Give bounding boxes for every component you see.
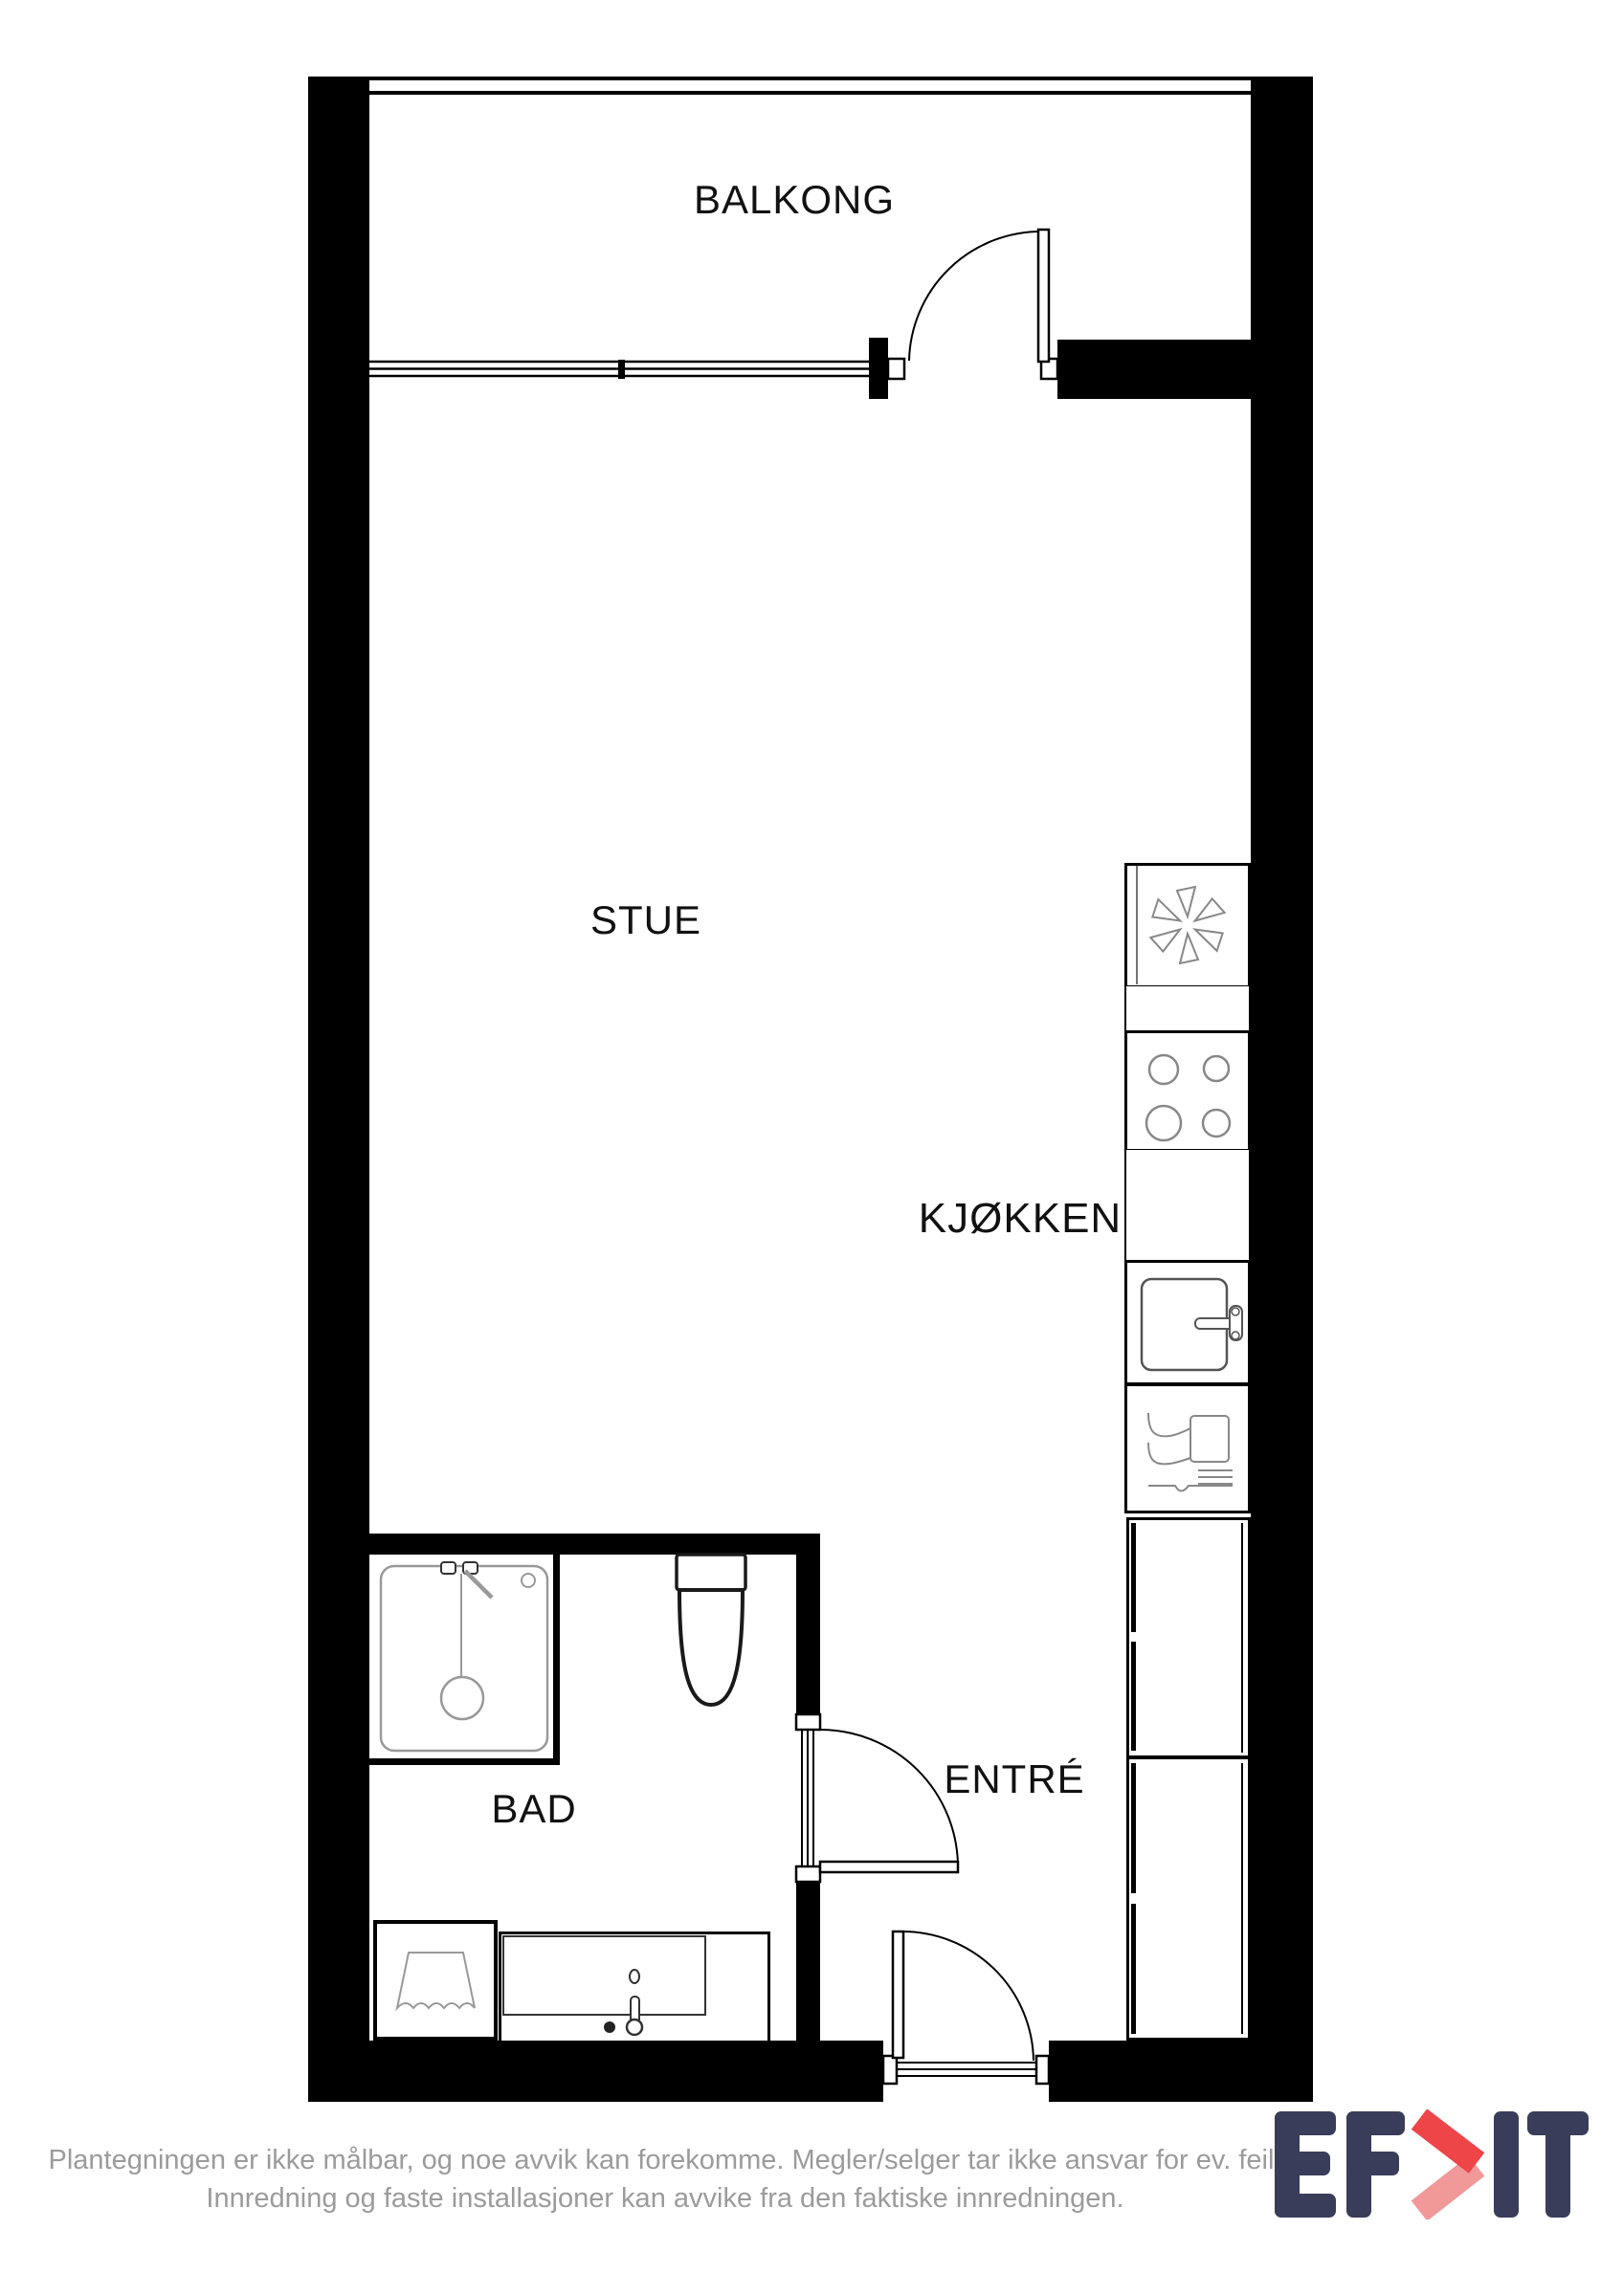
efkt-logo [1273, 2109, 1589, 2219]
fridge-snowflake-icon [1137, 866, 1226, 984]
cooktop-burners-icon [1146, 1055, 1230, 1140]
fixtures-layer [0, 0, 1623, 2296]
entrance-door-leaf [893, 1932, 903, 2058]
kitchen-sink-icon [1142, 1279, 1242, 1370]
room-label-bathroom: BAD [390, 1786, 678, 1832]
logo-letter-e [1275, 2111, 1336, 2218]
logo-letter-i [1494, 2111, 1519, 2218]
washbasin-icon [604, 1970, 642, 2035]
logo-chevron-icon [1419, 2119, 1477, 2211]
shower-icon [381, 1562, 547, 1751]
toilet-icon [677, 1555, 745, 1705]
dishwasher-icon [1148, 1413, 1233, 1491]
room-label-entrance: ENTRÉ [871, 1756, 1158, 1802]
floor-plan-page: BALKONG STUE KJØKKEN BAD ENTRÉ Plantegni… [0, 0, 1623, 2296]
logo-letter-t [1527, 2111, 1589, 2218]
disclaimer-text: Plantegningen er ikke målbar, og noe avv… [29, 2141, 1301, 2218]
balcony-door-leaf [1038, 230, 1049, 362]
disclaimer-line-2: Innredning og faste installasjoner kan a… [29, 2179, 1301, 2218]
room-label-living-room: STUE [502, 897, 789, 943]
laundry-basket-icon [397, 1953, 475, 2008]
logo-letter-f [1346, 2111, 1405, 2218]
room-label-balcony: BALKONG [651, 177, 938, 223]
balcony-door [888, 230, 1057, 379]
bathroom-door-leaf [820, 1862, 958, 1872]
room-label-kitchen: KJØKKEN [877, 1195, 1164, 1243]
disclaimer-line-1: Plantegningen er ikke målbar, og noe avv… [29, 2141, 1301, 2179]
entrance-door [883, 1932, 1049, 2084]
window-balcony [369, 360, 869, 379]
